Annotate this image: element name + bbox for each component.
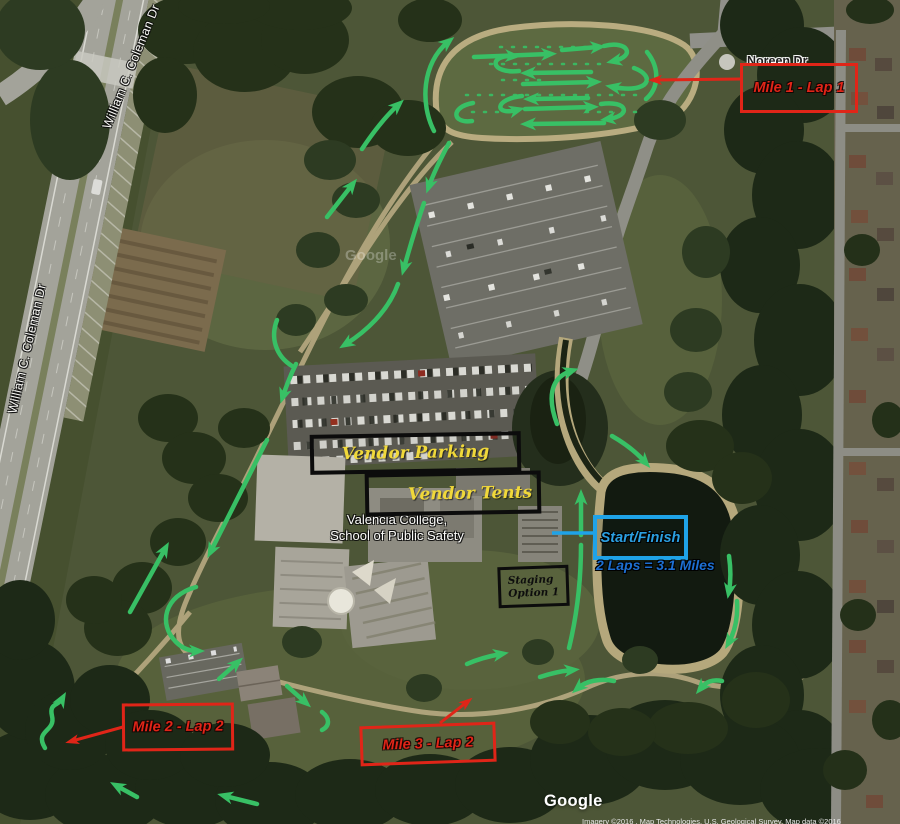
google-watermark: Google xyxy=(544,792,603,810)
satellite-basemap xyxy=(0,0,900,824)
mile-1-lap-1-box: Mile 1 - Lap 1 xyxy=(740,63,858,113)
staging-line1: Staging xyxy=(508,573,559,588)
staging-line2: Option 1 xyxy=(508,586,559,601)
vendor-tents-label: Vendor Tents xyxy=(408,482,533,504)
staging-option-label: Staging Option 1 xyxy=(508,573,560,601)
map-attribution: Imagery ©2016 , Map Technologies, U.S. G… xyxy=(582,818,841,824)
mile-3-lap-2-box: Mile 3 - Lap 2 xyxy=(359,722,496,767)
vendor-tents-box: Vendor Tents xyxy=(365,470,542,516)
vendor-parking-label: Vendor Parking xyxy=(341,442,489,465)
vendor-parking-box: Vendor Parking xyxy=(310,431,522,475)
google-ghost-watermark: Google xyxy=(345,248,397,265)
start-finish-label: Start/Finish xyxy=(601,530,681,546)
place-label-line2: School of Public Safety xyxy=(322,528,472,544)
mile-2-lap-2-box: Mile 2 - Lap 2 xyxy=(122,703,234,752)
mile-2-lap-2-label: Mile 2 - Lap 2 xyxy=(132,719,223,736)
staging-option-box: Staging Option 1 xyxy=(497,565,569,608)
start-finish-box: Start/Finish xyxy=(593,515,688,560)
residential-area xyxy=(823,0,900,824)
place-label-valencia: Valencia College, School of Public Safet… xyxy=(322,512,472,544)
laps-note-label: 2 Laps = 3.1 Miles xyxy=(596,558,715,573)
race-course-map: Noreen Dr William C. Coleman Dr William … xyxy=(0,0,900,824)
mile-3-lap-2-label: Mile 3 - Lap 2 xyxy=(382,734,474,753)
mile-1-lap-1-label: Mile 1 - Lap 1 xyxy=(753,80,844,96)
